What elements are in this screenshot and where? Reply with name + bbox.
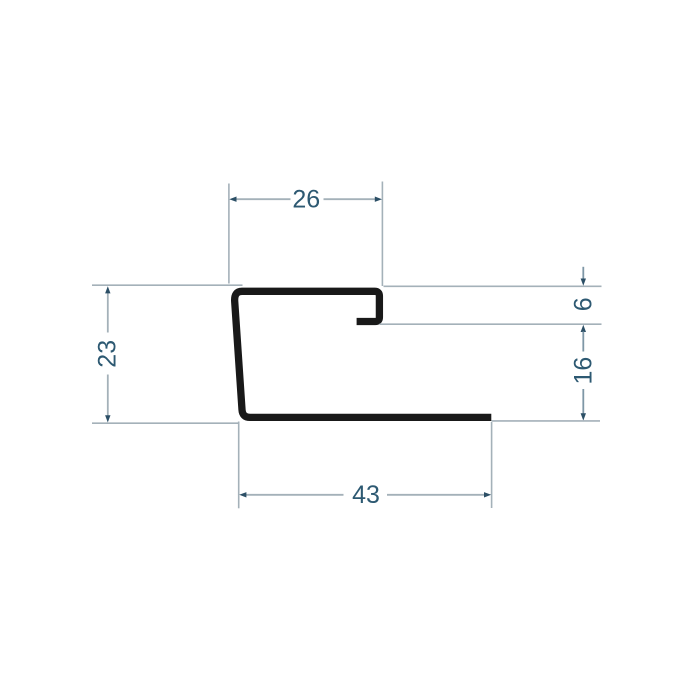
svg-text:6: 6 <box>570 297 598 311</box>
svg-text:16: 16 <box>570 357 598 385</box>
svg-text:26: 26 <box>292 186 320 214</box>
svg-text:43: 43 <box>352 481 380 509</box>
svg-text:23: 23 <box>94 340 122 368</box>
